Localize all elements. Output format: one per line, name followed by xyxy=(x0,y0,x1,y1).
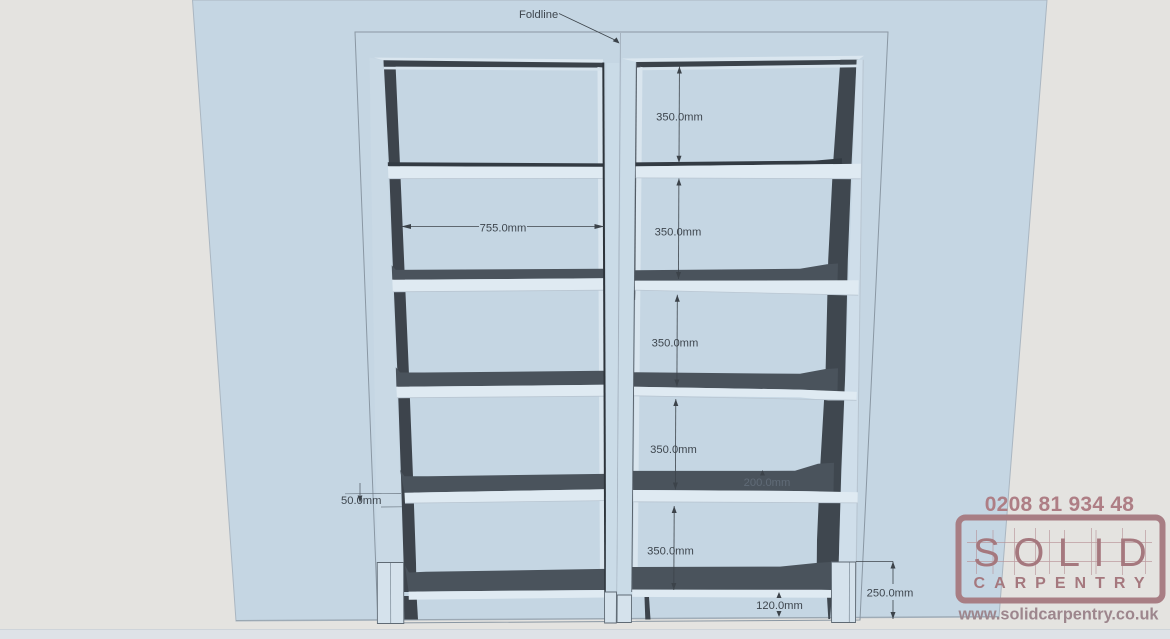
svg-text:120.0mm: 120.0mm xyxy=(756,600,803,612)
svg-text:755.0mm: 755.0mm xyxy=(480,223,527,235)
svg-text:350.0mm: 350.0mm xyxy=(655,227,702,239)
svg-text:CARPENTRY: CARPENTRY xyxy=(974,575,1154,592)
svg-text:350.0mm: 350.0mm xyxy=(656,112,703,124)
svg-text:350.0mm: 350.0mm xyxy=(650,444,697,456)
svg-text:SOLID: SOLID xyxy=(973,531,1160,575)
svg-text:200.0mm: 200.0mm xyxy=(744,477,791,489)
svg-text:350.0mm: 350.0mm xyxy=(652,338,699,350)
svg-text:www.solidcarpentry.co.uk: www.solidcarpentry.co.uk xyxy=(958,606,1160,624)
svg-text:Foldline: Foldline xyxy=(519,9,558,21)
svg-text:350.0mm: 350.0mm xyxy=(647,546,694,558)
svg-text:0208 81 934 48: 0208 81 934 48 xyxy=(985,493,1135,516)
svg-text:250.0mm: 250.0mm xyxy=(867,588,914,600)
